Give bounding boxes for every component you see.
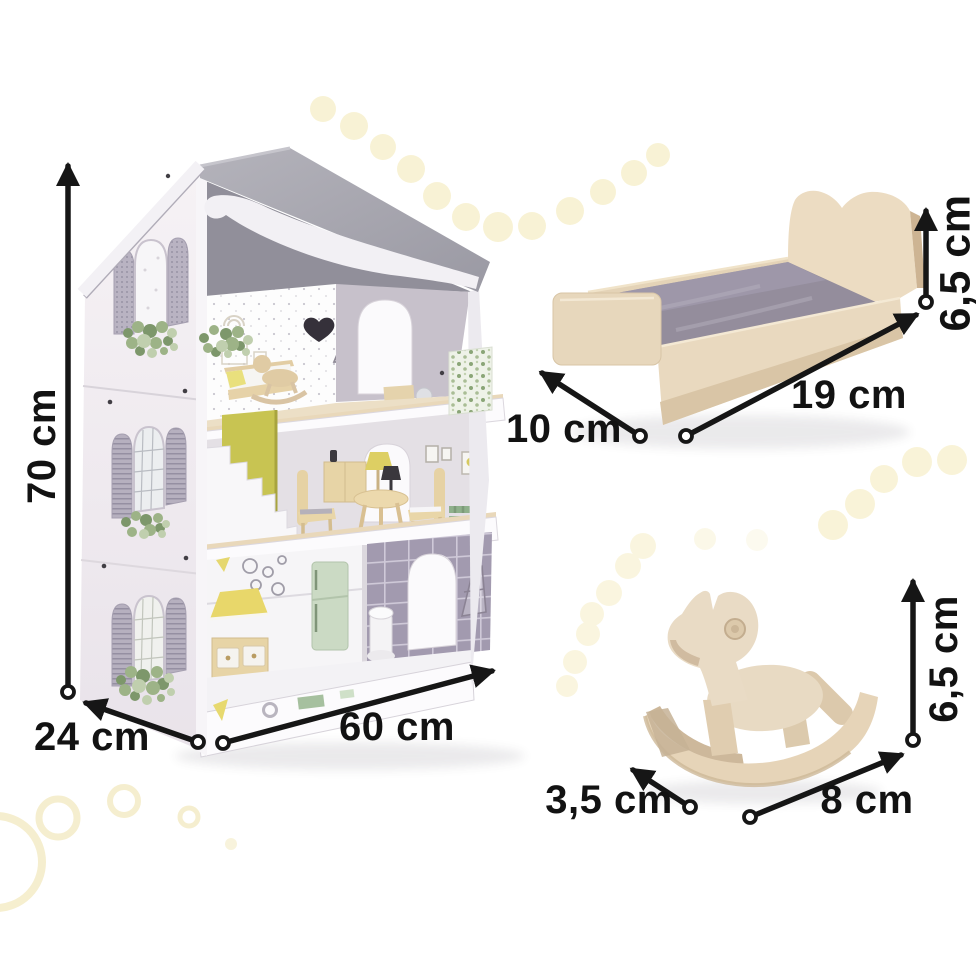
bed-footboard [553, 293, 661, 365]
bed-length-label: 19 cm [791, 375, 907, 415]
rocking-horse-illustration [642, 591, 882, 804]
horse-height-arrow [907, 582, 919, 746]
bed-height-label: 6,5 cm [935, 195, 978, 332]
bed-width-label: 10 cm [506, 409, 622, 449]
attic-arch-door [358, 300, 412, 394]
dollhouse-width-label: 60 cm [339, 707, 455, 747]
room-divider [362, 545, 367, 664]
horse-width-label: 3,5 cm [545, 780, 673, 820]
dollhouse-depth-label: 24 cm [34, 717, 150, 757]
black-vase [330, 450, 337, 462]
dollhouse-height-label: 70 cm [22, 388, 62, 504]
round-table [354, 490, 408, 508]
foliage-panel [449, 347, 492, 415]
horse-height-label: 6,5 cm [924, 595, 964, 723]
front-corner-edge [196, 170, 207, 756]
product-dimensions-image: 70 cm 24 cm 60 cm 6,5 cm 19 cm 10 cm 6,5… [0, 0, 980, 980]
black-lamp [381, 466, 401, 480]
horse-length-label: 8 cm [820, 780, 913, 820]
illustration-canvas [0, 0, 980, 980]
toilet [367, 607, 395, 662]
dollhouse-illustration [80, 148, 525, 770]
fridge-mint [312, 562, 348, 650]
